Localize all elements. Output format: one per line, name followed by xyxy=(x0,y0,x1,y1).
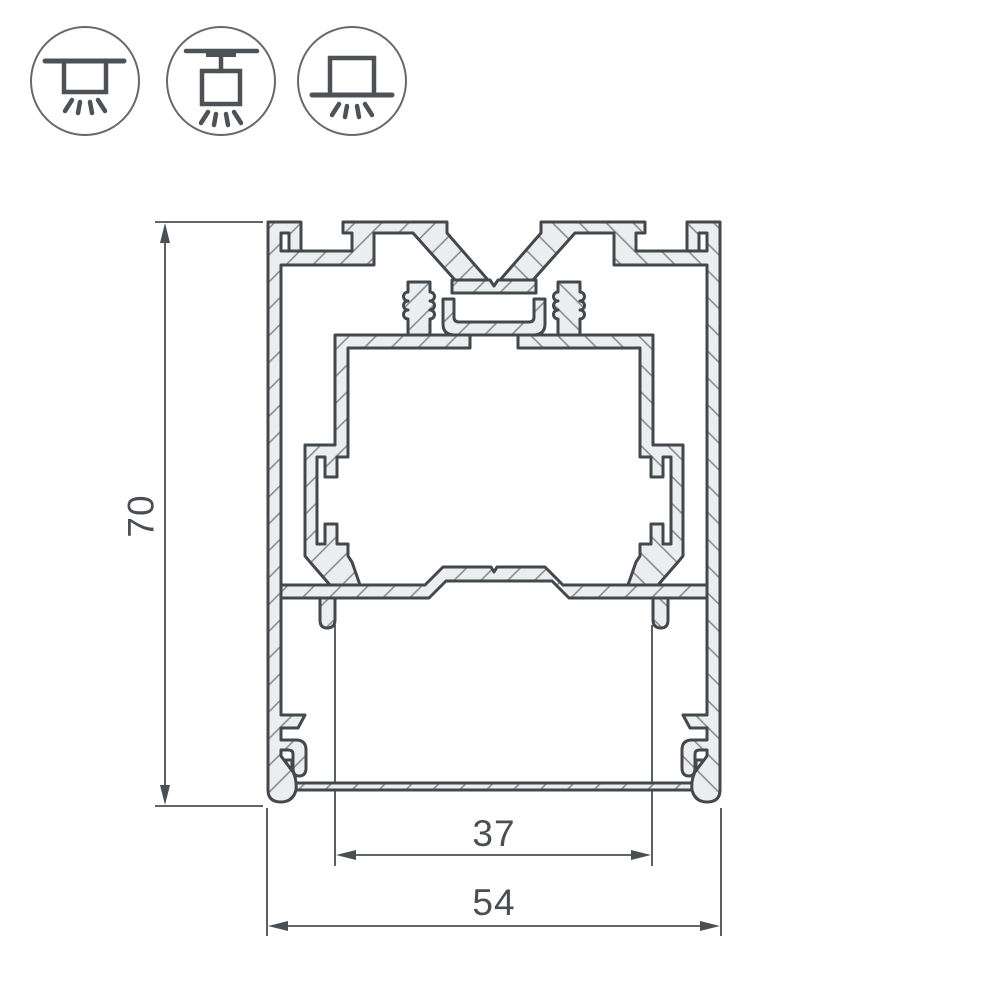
retainer-hook xyxy=(320,598,335,628)
top-web-v-notch xyxy=(452,280,536,293)
dim-window-width-label: 37 xyxy=(472,813,515,854)
drawing-page: 70 37 54 xyxy=(0,0,1000,1000)
pendant-suspension-mount-icon xyxy=(167,27,275,135)
screw-channel xyxy=(443,299,545,335)
base-surface-mount-icon xyxy=(298,27,406,135)
drawing-canvas: 70 37 54 xyxy=(0,0,1000,1000)
dim-overall-width-label: 54 xyxy=(472,882,515,923)
ceiling-surface-mount-icon xyxy=(31,27,139,135)
mount-type-icons xyxy=(31,27,406,135)
diffuser-plate xyxy=(286,760,702,790)
dimension-height xyxy=(155,222,263,806)
screw-boss-serrated xyxy=(404,282,435,342)
inner-wall-and-c-slot xyxy=(305,335,470,585)
dim-height-label: 70 xyxy=(121,494,162,537)
